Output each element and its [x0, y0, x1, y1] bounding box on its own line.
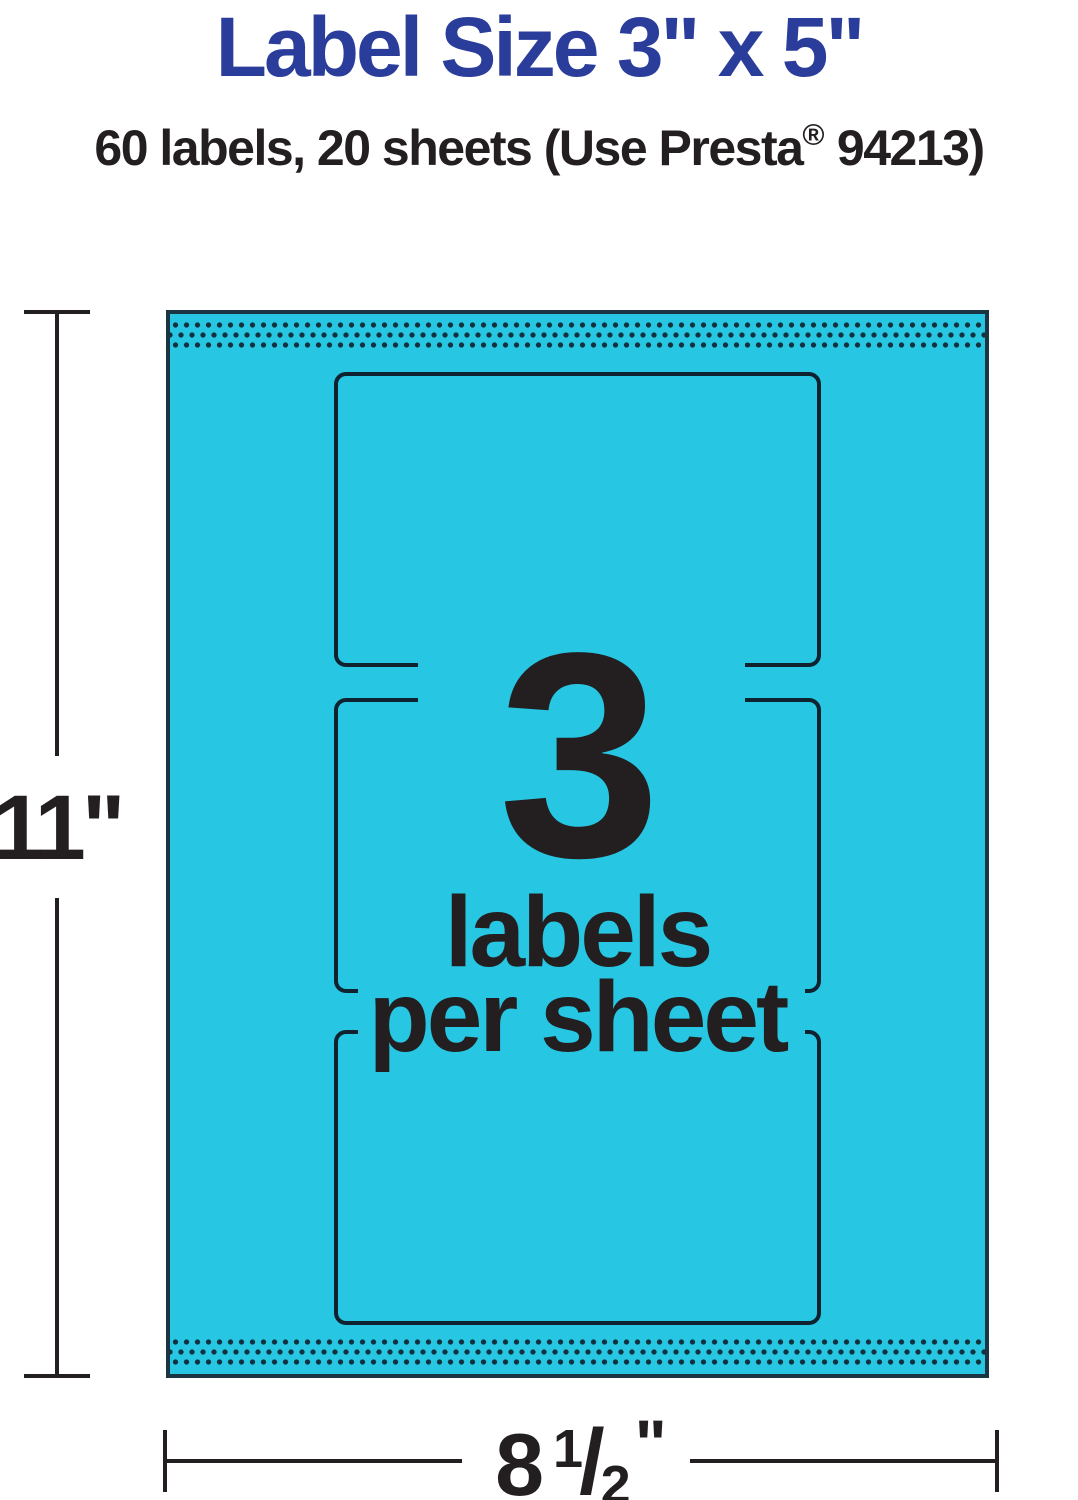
- subtitle-prefix: 60 labels, 20 sheets (Use Presta: [94, 120, 802, 176]
- labels-count: 3: [170, 609, 985, 901]
- registered-trademark-symbol: ®: [802, 119, 824, 152]
- width-dimension-left-tick: [163, 1430, 167, 1492]
- page-title: Label Size 3" x 5": [0, 2, 1078, 93]
- height-dimension-line-upper: [55, 312, 59, 756]
- width-dimension-label: 81/2": [380, 1418, 780, 1500]
- subtitle-suffix: 94213): [825, 120, 984, 176]
- subtitle: 60 labels, 20 sheets (Use Presta® 94213): [0, 121, 1078, 176]
- height-dimension-label: 11": [0, 782, 132, 874]
- width-inch-mark: ": [635, 1406, 665, 1482]
- labels-count-caption-line2: per sheet: [170, 967, 985, 1067]
- label-outline-3: [334, 1030, 821, 1325]
- label-sheet: 3 labels per sheet: [166, 310, 989, 1378]
- width-fraction-denominator: 2: [601, 1455, 631, 1500]
- width-dimension-right-tick: [995, 1430, 999, 1492]
- width-whole-number: 8: [495, 1415, 541, 1500]
- bottom-perforation-band: [170, 1337, 985, 1368]
- height-dimension-line-lower: [55, 898, 59, 1378]
- height-dimension-top-tick: [24, 310, 90, 314]
- product-diagram-page: Label Size 3" x 5" 60 labels, 20 sheets …: [0, 0, 1078, 1500]
- top-perforation-band: [170, 320, 985, 351]
- height-dimension-bottom-tick: [24, 1374, 90, 1378]
